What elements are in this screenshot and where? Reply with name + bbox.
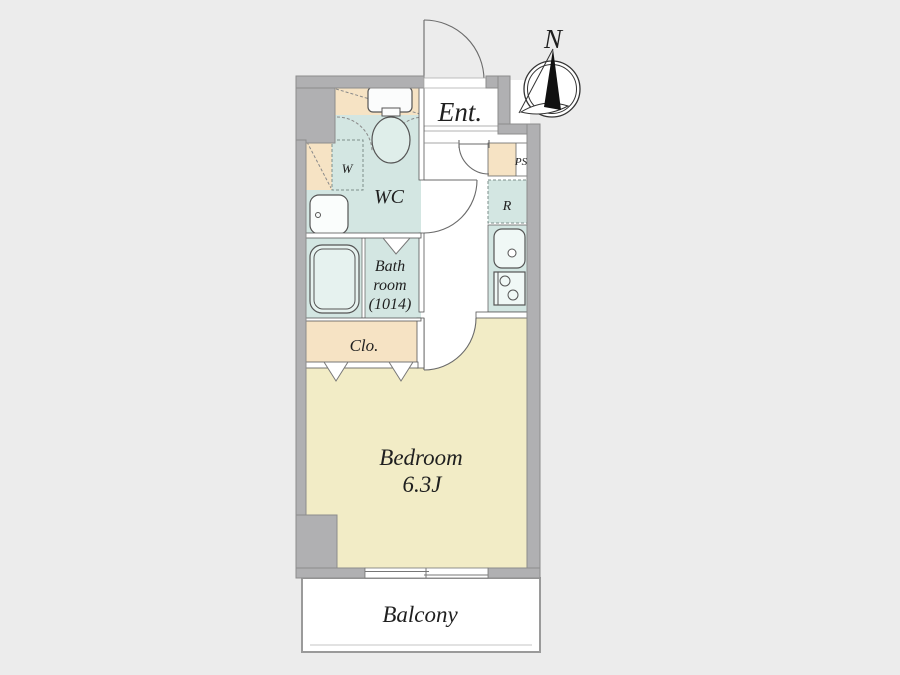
pipe-space-floor	[488, 143, 516, 176]
entrance-label: Ent.	[437, 97, 482, 127]
kitchen-faucet	[508, 249, 516, 257]
kitchen-sink	[494, 229, 525, 268]
bedroom-label: Bedroom	[379, 445, 462, 470]
toilet-flush	[382, 108, 400, 116]
closet-label: Clo.	[350, 336, 379, 355]
floor-plan: Ent. WC W PS R Bath room (1014) Clo. Bed…	[0, 0, 900, 675]
bathroom-label-1: Bath	[375, 258, 405, 275]
pipe-space-label: PS	[514, 156, 528, 168]
entrance-threshold	[424, 78, 486, 88]
stove	[494, 272, 525, 305]
bedroom-size-label: 6.3J	[403, 472, 444, 497]
bathroom-label-2: room	[373, 277, 406, 294]
bathroom-divider	[362, 238, 365, 318]
bathroom-label-3: (1014)	[369, 296, 412, 313]
washroom-label: WC	[374, 186, 405, 208]
balcony-label: Balcony	[382, 602, 458, 627]
washer-space-label: W	[342, 161, 354, 176]
bathtub-outer	[310, 245, 359, 313]
toilet-bowl	[372, 117, 410, 163]
balcony-window	[365, 568, 488, 578]
floor-plan-drawing: Ent. WC W PS R Bath room (1014) Clo. Bed…	[0, 0, 900, 675]
refrigerator-label: R	[502, 199, 512, 214]
north-label: N	[543, 24, 564, 54]
